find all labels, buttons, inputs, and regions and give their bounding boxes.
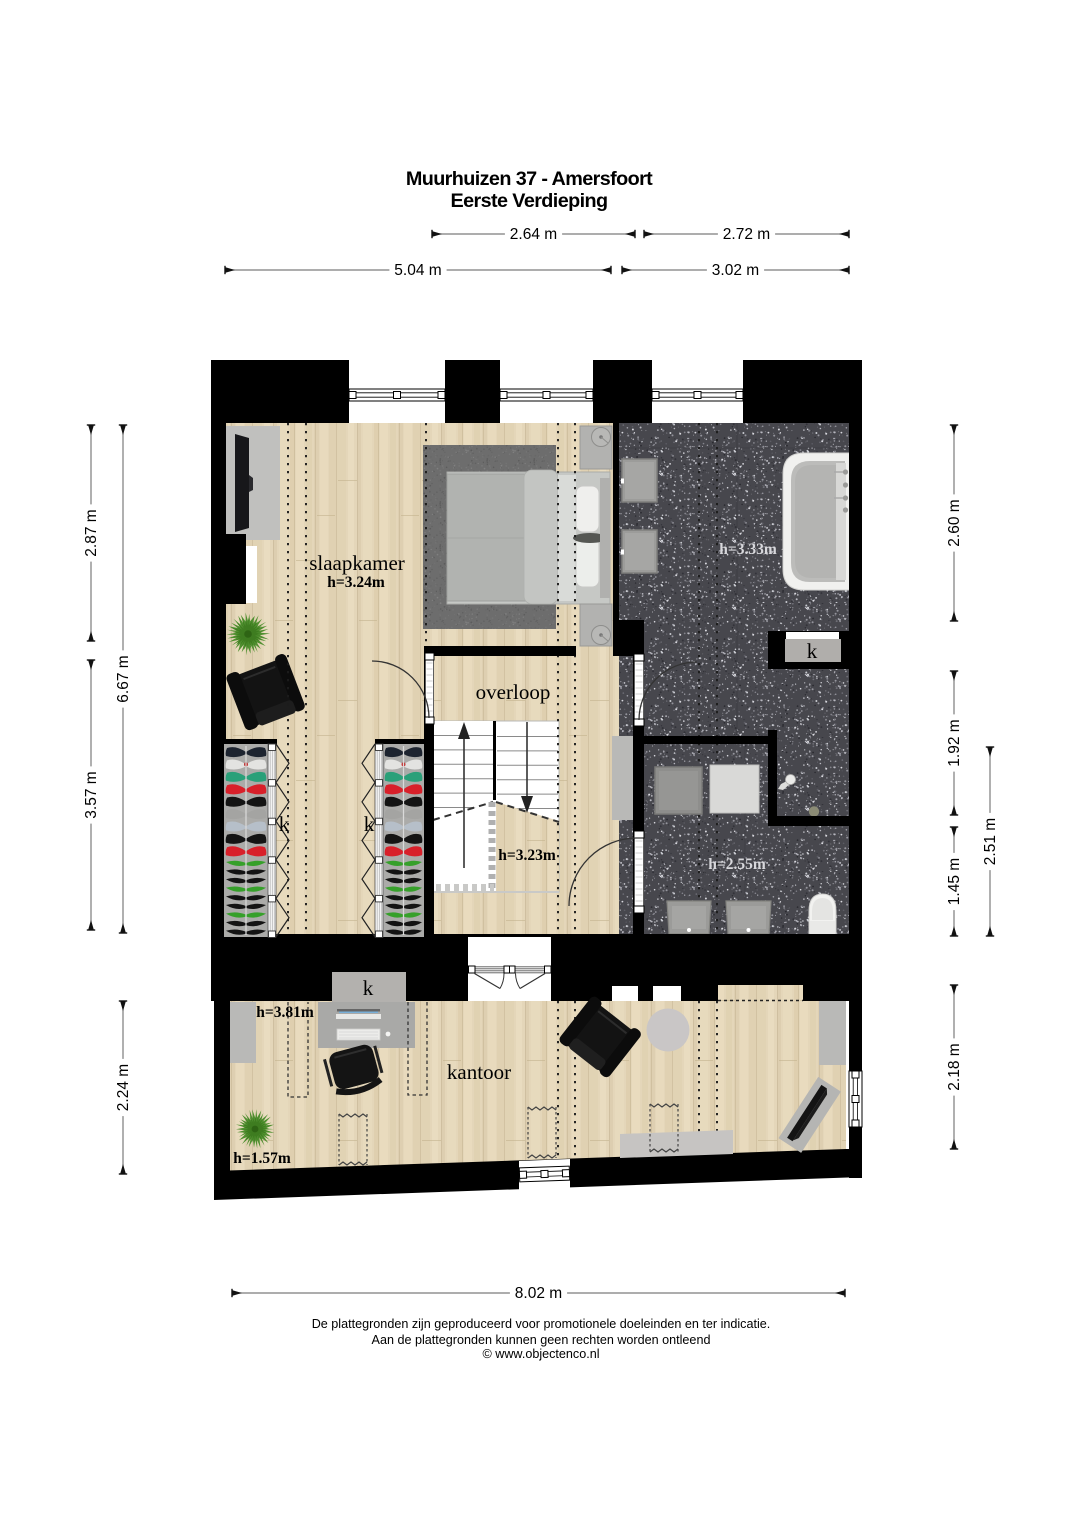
svg-text:3.57 m: 3.57 m xyxy=(83,771,100,818)
svg-text:h=2.55m: h=2.55m xyxy=(708,856,766,873)
svg-text:1.92 m: 1.92 m xyxy=(946,719,963,766)
svg-text:Eerste Verdieping: Eerste Verdieping xyxy=(451,190,608,212)
svg-text:2.64 m: 2.64 m xyxy=(510,226,557,243)
svg-text:k: k xyxy=(364,812,375,836)
svg-text:slaapkamer: slaapkamer xyxy=(309,551,405,575)
svg-text:5.04 m: 5.04 m xyxy=(394,262,441,279)
svg-text:k: k xyxy=(807,639,818,663)
svg-text:© www.objectenco.nl: © www.objectenco.nl xyxy=(482,1347,599,1361)
svg-text:h=3.33m: h=3.33m xyxy=(719,541,777,558)
svg-text:3.02 m: 3.02 m xyxy=(712,262,759,279)
svg-text:2.51 m: 2.51 m xyxy=(982,818,999,865)
svg-text:k: k xyxy=(363,976,374,1000)
svg-text:8.02 m: 8.02 m xyxy=(515,1285,562,1302)
svg-text:h=1.57m: h=1.57m xyxy=(233,1150,291,1167)
svg-text:6.67 m: 6.67 m xyxy=(115,655,132,702)
svg-text:2.72 m: 2.72 m xyxy=(723,226,770,243)
svg-text:2.24 m: 2.24 m xyxy=(115,1064,132,1111)
svg-text:k: k xyxy=(279,812,290,836)
svg-text:2.87 m: 2.87 m xyxy=(83,509,100,556)
svg-text:De plattegronden zijn geproduc: De plattegronden zijn geproduceerd voor … xyxy=(312,1317,771,1331)
svg-text:h=3.24m: h=3.24m xyxy=(327,574,385,591)
svg-text:h=3.23m: h=3.23m xyxy=(498,847,556,864)
svg-text:h=3.81m: h=3.81m xyxy=(256,1004,314,1021)
svg-text:1.45 m: 1.45 m xyxy=(946,858,963,905)
svg-text:Aan de plattegronden kunnen ge: Aan de plattegronden kunnen geen rechten… xyxy=(372,1333,711,1347)
svg-text:2.18 m: 2.18 m xyxy=(946,1043,963,1090)
svg-text:Muurhuizen 37 - Amersfoort: Muurhuizen 37 - Amersfoort xyxy=(406,168,653,190)
svg-text:kantoor: kantoor xyxy=(447,1060,511,1084)
svg-text:overloop: overloop xyxy=(476,680,551,704)
svg-text:2.60 m: 2.60 m xyxy=(946,499,963,546)
